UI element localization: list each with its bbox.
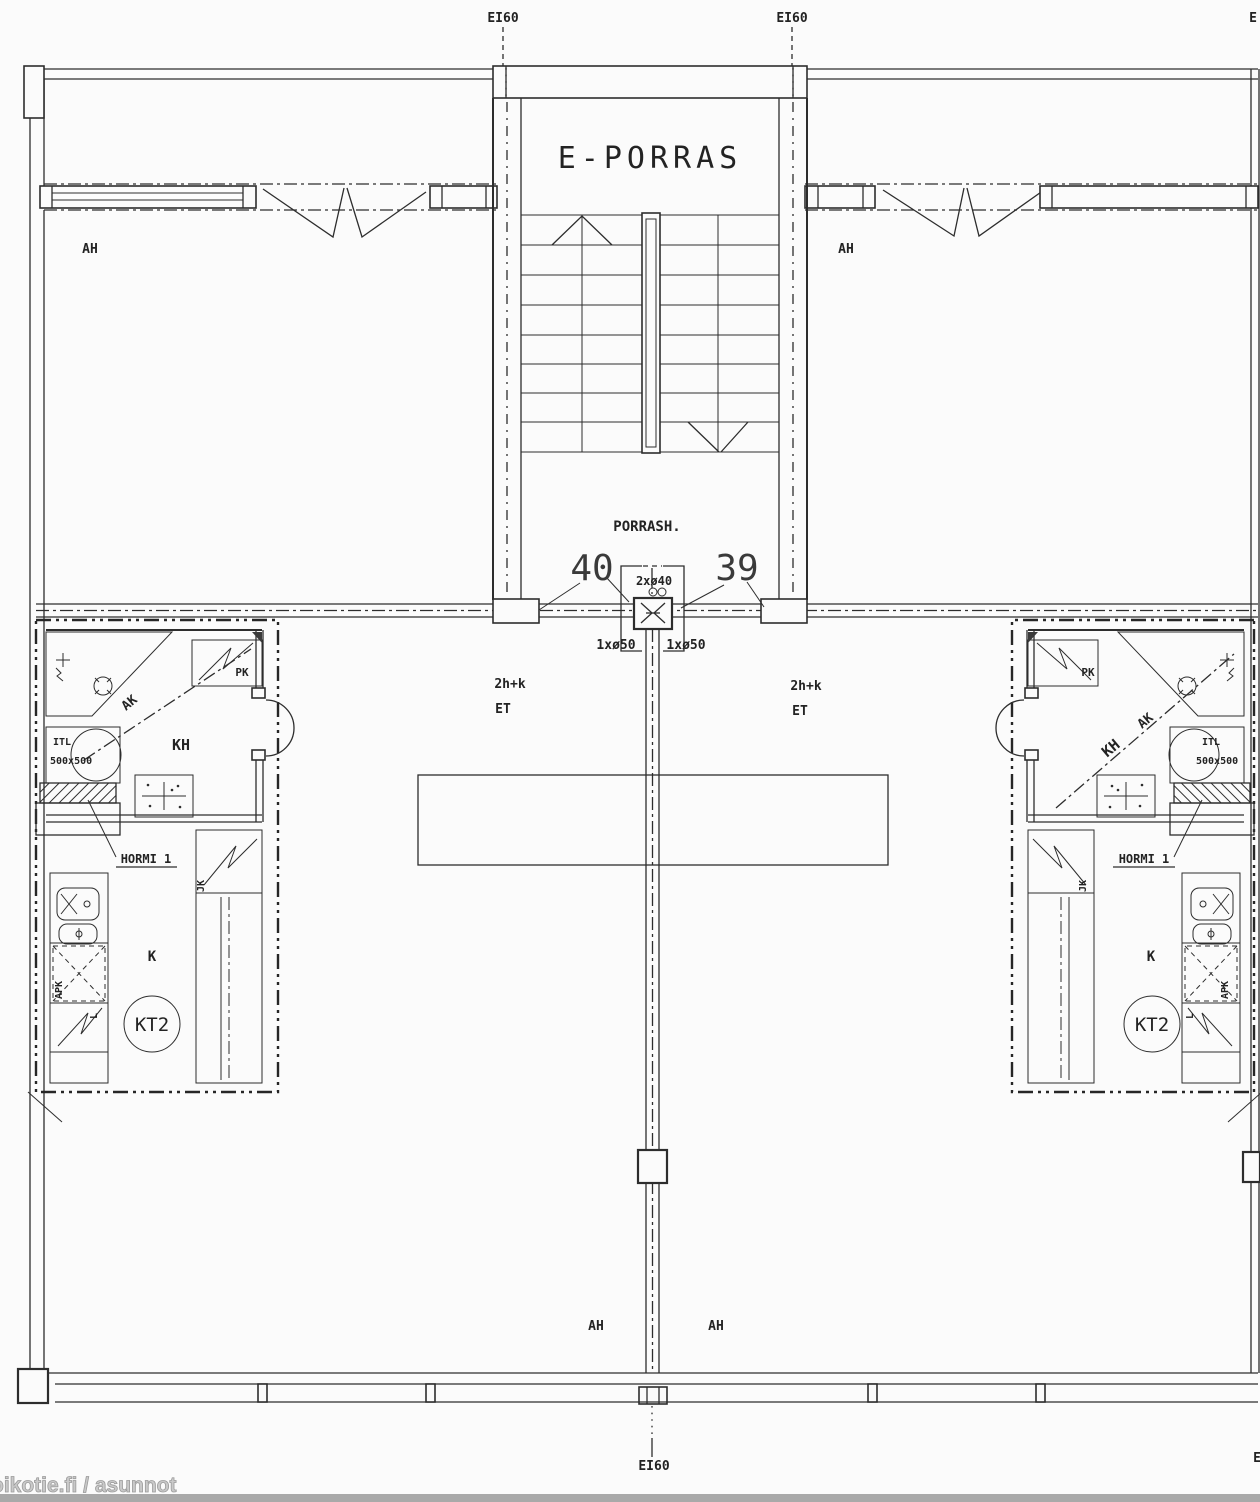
entry-label-left: ET	[495, 702, 511, 717]
window-top-left	[40, 186, 256, 208]
right-wall-box	[1243, 1152, 1260, 1182]
window-top-mid-left	[430, 186, 497, 208]
vent-unit-label: ITL	[1202, 737, 1220, 748]
entry-label-right: ET	[792, 704, 808, 719]
fire-rating-label: EI60	[638, 1459, 669, 1474]
pipe-label-left: 1xø50	[596, 638, 635, 653]
kitchen-type-label: KT2	[135, 1014, 169, 1036]
stove-label: L	[89, 1013, 100, 1019]
duct-hatch	[40, 783, 116, 803]
floor-plan-page: EI60 EI60 E E-PORRAS PORRASH. 40 39 2xø4…	[0, 0, 1260, 1502]
balcony-label: AH	[588, 1319, 604, 1334]
dishwasher-label: APK	[54, 981, 65, 999]
window-top-mid-right	[805, 186, 875, 208]
stairwell-name: E-PORRAS	[558, 141, 743, 176]
window-mullion	[258, 1384, 267, 1402]
wall-post-right	[761, 599, 807, 623]
stair-divider	[642, 213, 660, 453]
window-mullion	[426, 1384, 435, 1402]
apartment-number-left: 40	[570, 548, 613, 589]
apartment-type-left: 2h+k	[494, 677, 525, 692]
fire-rating-label-clipped: E	[1253, 1451, 1260, 1466]
dishwasher-label: APK	[1220, 981, 1231, 999]
fridge-label: JK	[1078, 880, 1089, 892]
balcony-label: AH	[82, 242, 98, 257]
fire-rating-label: EI60	[487, 11, 518, 26]
duct-label: HORMI 1	[1119, 852, 1170, 866]
wall-pier-top-left	[24, 66, 44, 118]
watermark: oikotie.fi / asunnot	[0, 1474, 177, 1497]
vent-unit-label: ITL	[53, 737, 71, 748]
window-top-right	[1040, 186, 1258, 208]
wall-post-left	[493, 599, 539, 623]
vent-unit-size: 500x500	[50, 756, 92, 767]
washing-machine-label: PK	[235, 666, 249, 679]
kitchen-type-label: KT2	[1135, 1014, 1169, 1036]
apartment-number-right: 39	[715, 548, 758, 589]
stair-hall-label: PORRASH.	[613, 519, 680, 535]
wall-pier-bottom-left	[18, 1369, 48, 1403]
bathroom-label: KH	[172, 736, 190, 754]
floor-plan-drawing: EI60 EI60 E E-PORRAS PORRASH. 40 39 2xø4…	[0, 0, 1260, 1502]
window-mullion	[1036, 1384, 1045, 1402]
washing-machine-label: PK	[1081, 666, 1095, 679]
party-wall-box	[638, 1150, 667, 1183]
pipe-label-top: 2xø40	[636, 574, 672, 588]
duct-label: HORMI 1	[121, 852, 172, 866]
bottom-edge-bar	[0, 1494, 1260, 1502]
kitchen-label: K	[1147, 949, 1156, 965]
fridge-label: JK	[196, 880, 207, 892]
apartment-type-right: 2h+k	[790, 679, 821, 694]
balcony-label: AH	[838, 242, 854, 257]
fire-rating-label-clipped: E	[1249, 11, 1257, 26]
window-mullion	[868, 1384, 877, 1402]
vent-unit-size: 500x500	[1196, 756, 1238, 767]
stairwell-top-wall	[493, 66, 807, 98]
fire-rating-label: EI60	[776, 11, 807, 26]
pipe-label-right: 1xø50	[666, 638, 705, 653]
kitchen-label: K	[148, 949, 157, 965]
balcony-label: AH	[708, 1319, 724, 1334]
stove-label: L	[1185, 1013, 1196, 1019]
